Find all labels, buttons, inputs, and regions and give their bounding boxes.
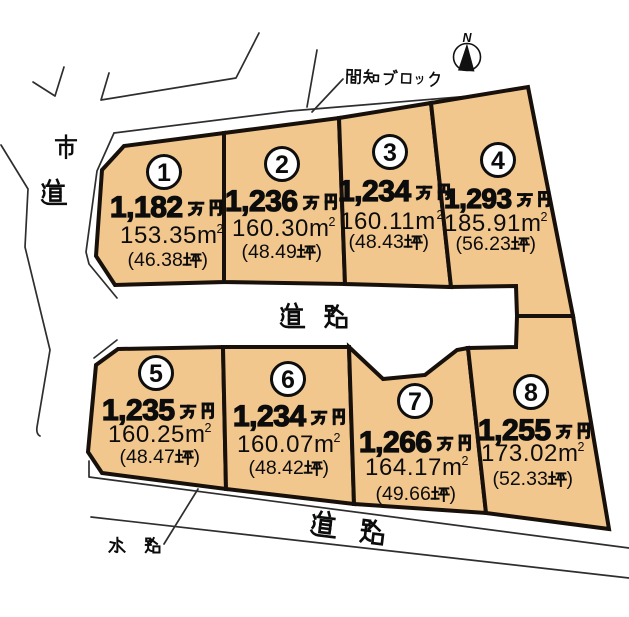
- svg-text:160.07m: 160.07m: [237, 431, 335, 458]
- svg-text:): ): [423, 231, 430, 253]
- svg-text:1,182: 1,182: [110, 191, 183, 224]
- svg-text:(49.66: (49.66: [376, 483, 431, 505]
- svg-text:(52.33: (52.33: [493, 468, 548, 490]
- svg-text:8: 8: [524, 379, 538, 407]
- svg-text:2: 2: [437, 208, 444, 222]
- svg-text:N: N: [462, 31, 472, 45]
- svg-text:): ): [530, 233, 537, 255]
- svg-text:4: 4: [491, 147, 505, 175]
- svg-text:160.25m: 160.25m: [108, 421, 206, 448]
- svg-text:2: 2: [217, 222, 224, 236]
- svg-text:1,236: 1,236: [225, 185, 298, 218]
- svg-text:(48.43: (48.43: [349, 231, 404, 253]
- svg-text:7: 7: [408, 388, 422, 416]
- svg-text:1: 1: [157, 159, 171, 187]
- svg-text:(48.47: (48.47: [120, 446, 175, 468]
- svg-text:1,234: 1,234: [338, 175, 411, 208]
- svg-text:2: 2: [205, 421, 212, 435]
- svg-text:2: 2: [462, 454, 469, 468]
- svg-text:): ): [194, 446, 201, 468]
- svg-text:): ): [450, 483, 457, 505]
- svg-text:173.02m: 173.02m: [481, 440, 579, 467]
- svg-text:(48.42: (48.42: [249, 457, 304, 479]
- svg-text:153.35m: 153.35m: [120, 222, 218, 249]
- svg-text:2: 2: [541, 210, 548, 224]
- svg-text:(46.38: (46.38: [128, 249, 183, 271]
- svg-text:164.17m: 164.17m: [365, 454, 463, 481]
- svg-text:(56.23: (56.23: [456, 233, 511, 255]
- svg-text:2: 2: [334, 431, 341, 445]
- svg-text:6: 6: [281, 366, 295, 394]
- svg-text:): ): [202, 249, 209, 271]
- svg-text:2: 2: [329, 215, 336, 229]
- svg-text:(48.49: (48.49: [242, 241, 297, 263]
- svg-text:): ): [316, 241, 323, 263]
- svg-text:2: 2: [275, 151, 289, 179]
- svg-text:5: 5: [149, 360, 163, 388]
- svg-text:): ): [323, 457, 330, 479]
- svg-text:3: 3: [383, 139, 397, 167]
- svg-text:160.30m: 160.30m: [232, 215, 330, 242]
- svg-text:1,234: 1,234: [233, 400, 306, 433]
- svg-text:): ): [567, 468, 574, 490]
- svg-text:2: 2: [578, 440, 585, 454]
